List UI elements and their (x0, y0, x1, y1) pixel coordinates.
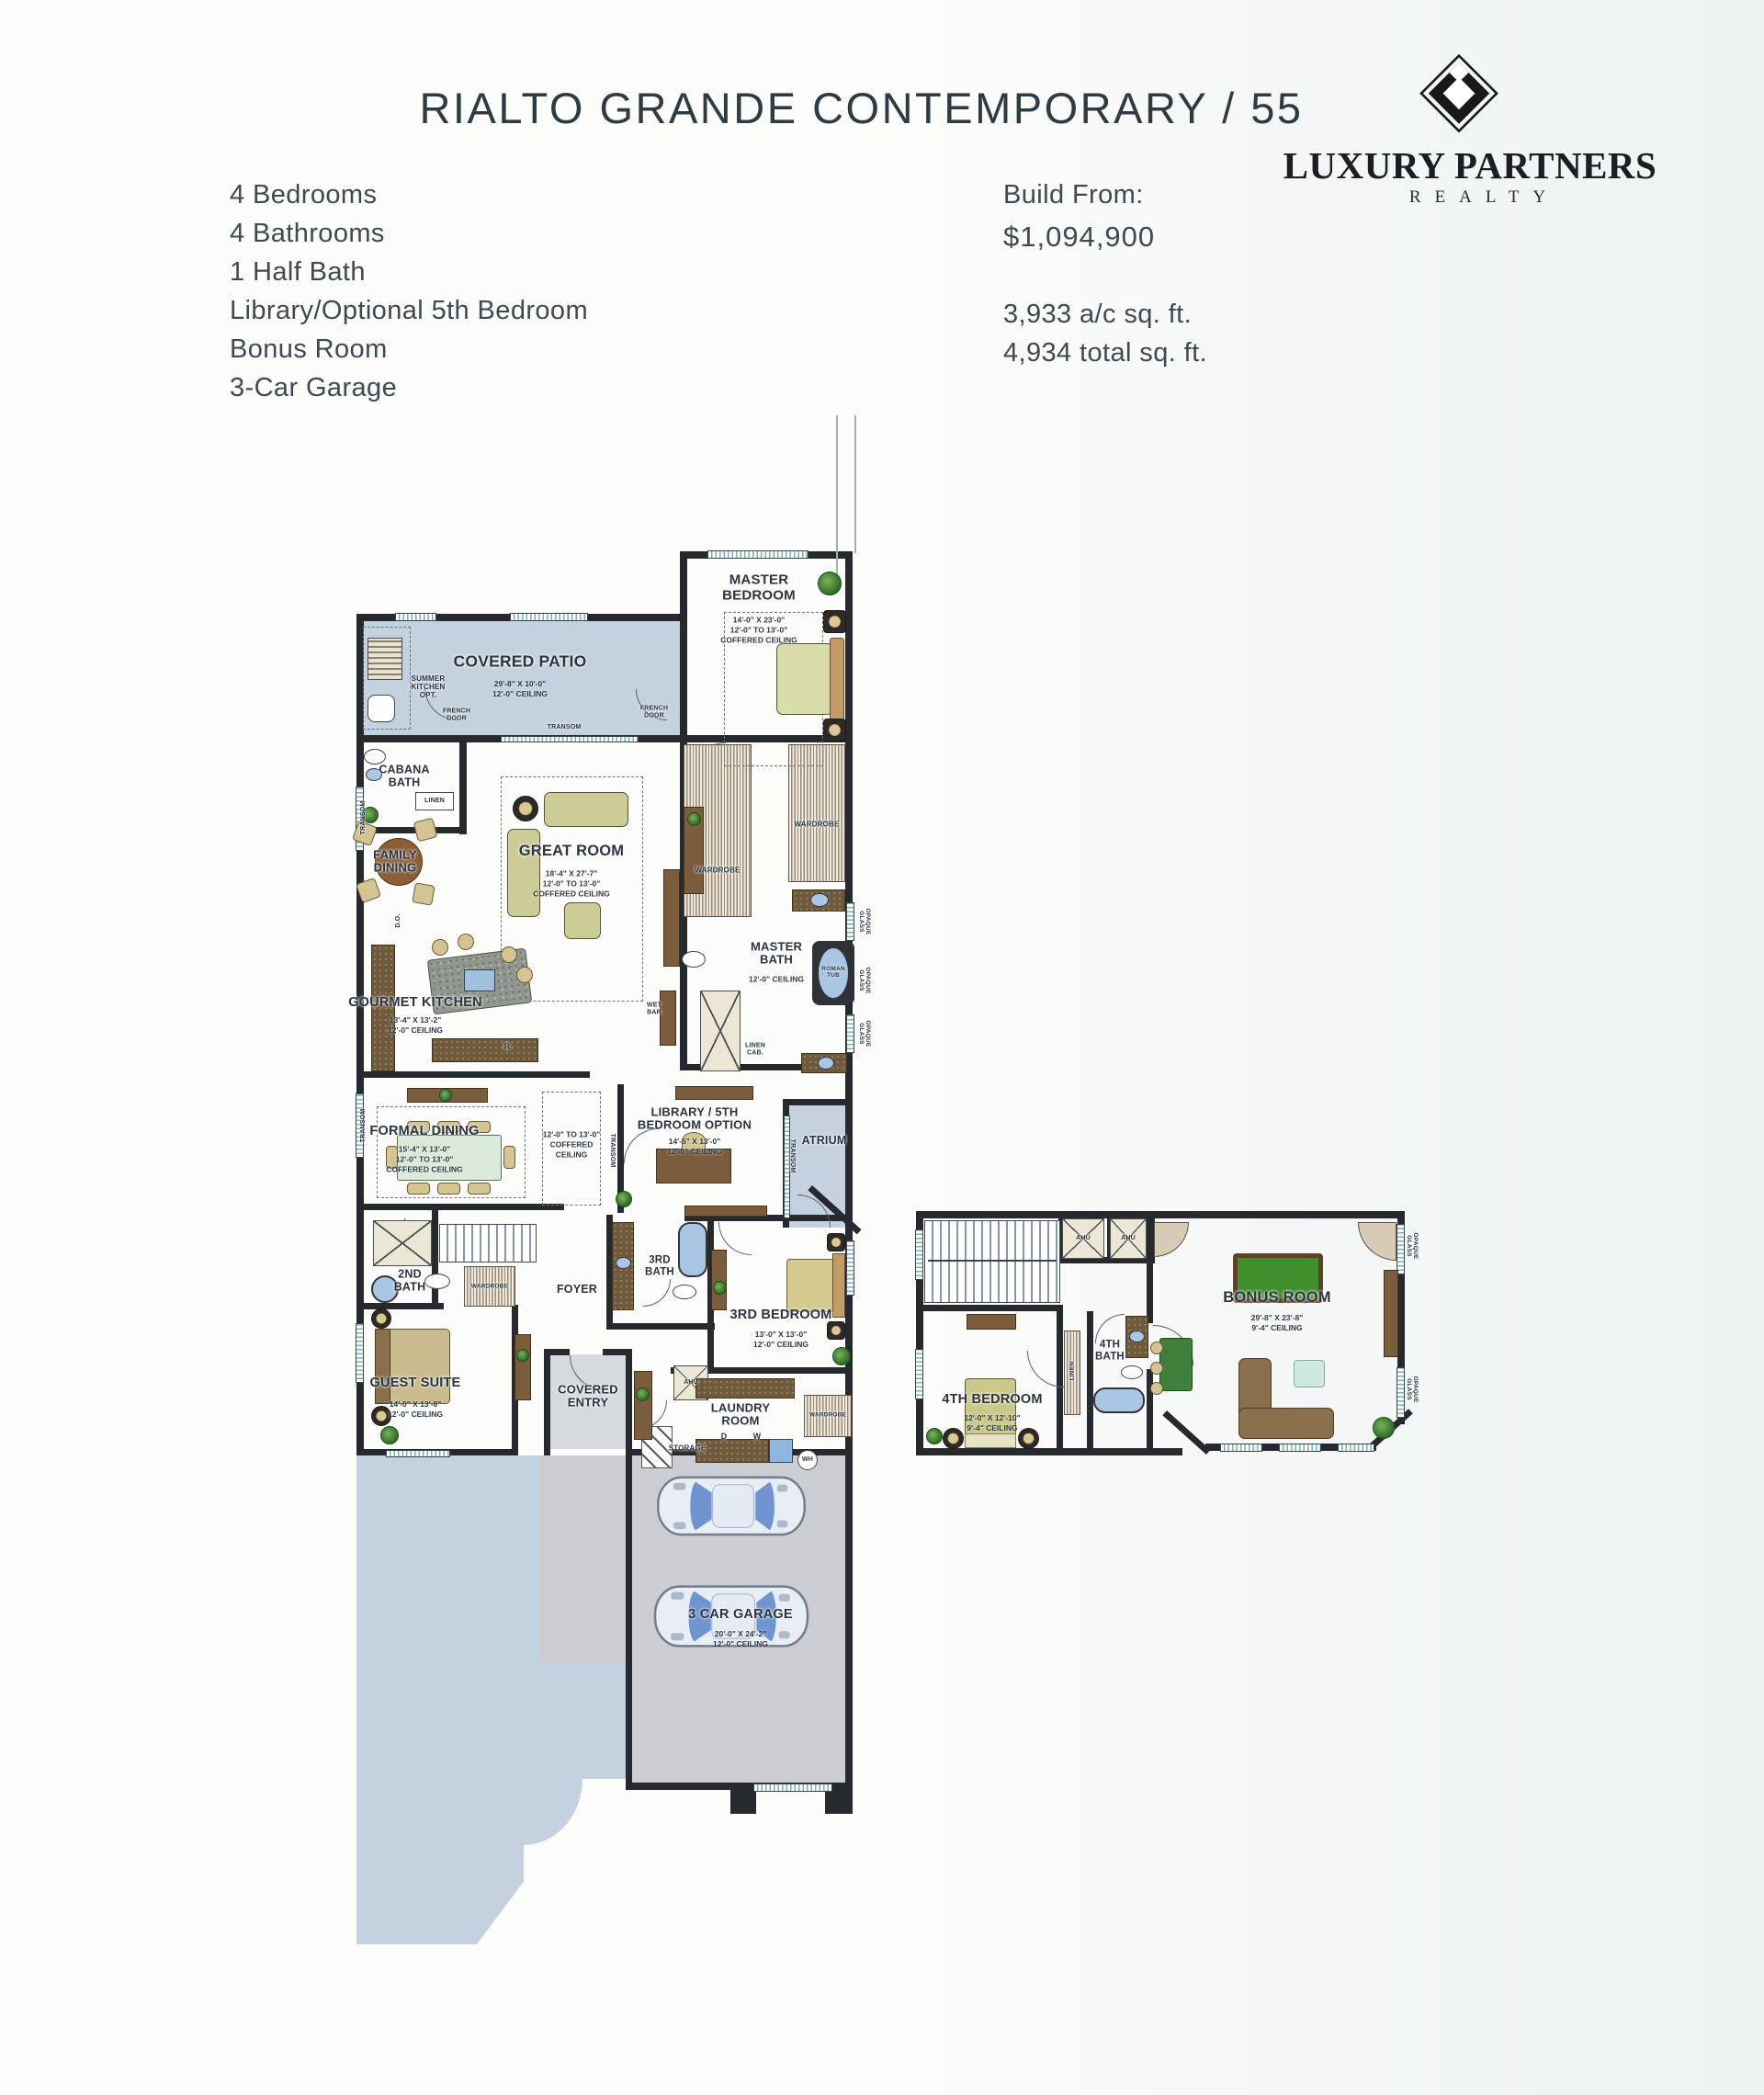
room-label-guest-suite: GUEST SUITE (370, 1376, 461, 1391)
tag-wardrobe: WARDROBE (695, 867, 740, 876)
plant (832, 1347, 851, 1365)
tag-french-door: FRENCH DOOR (443, 708, 470, 721)
ac-sqft: 3,933 a/c sq. ft. (1003, 300, 1192, 330)
tag-opaque-glass: OPAQUE GLASS (858, 968, 871, 994)
window (1220, 1444, 1262, 1452)
sink (1129, 1331, 1145, 1342)
nightstand (827, 1233, 845, 1251)
tag-ahu: AHU (684, 1379, 698, 1387)
tag-wardrobe: WARDROBE (809, 1411, 846, 1418)
stairs-second-floor (924, 1220, 1060, 1303)
room-dims-gourmet-kitchen: 13'-4" X 13'-2" 12'-0" CEILING (388, 1015, 443, 1036)
window-opaque-glass (846, 1014, 854, 1053)
room-dims-bonus-room: 29'-8" X 23'-8" 9'-4" CEILING (1251, 1313, 1304, 1333)
chair (412, 882, 435, 905)
brand-name: LUXURY PARTNERS (1268, 143, 1672, 187)
nightstand (943, 1428, 964, 1449)
tag-transom: TRANSOM (548, 724, 582, 731)
room-label-master-bedroom: MASTER BEDROOM (722, 573, 796, 604)
stairs-foyer (439, 1224, 537, 1263)
room-label-garage: 3 CAR GARAGE (688, 1608, 793, 1623)
wall (626, 1349, 632, 1455)
tag-opaque-glass: OPAQUE GLASS (1406, 1233, 1419, 1260)
plant (818, 572, 842, 595)
garage-pillar (730, 1790, 756, 1814)
tag-summer-kitchen: SUMMER KITCHEN OPT. (412, 675, 446, 699)
planter (634, 1371, 652, 1440)
garage-pillar (825, 1790, 853, 1814)
ottoman (1294, 1360, 1325, 1387)
stool (516, 967, 533, 983)
room-label-gourmet-kitchen: GOURMET KITCHEN (348, 996, 482, 1011)
window (395, 613, 436, 621)
plant (516, 1349, 529, 1362)
plant (687, 812, 701, 826)
window (356, 1323, 364, 1383)
bed-headboard (830, 638, 844, 720)
window-opaque-glass (846, 902, 854, 941)
tag-transom: TRANSOM (360, 801, 367, 835)
room-dims-formal-dining: 15'-4" X 13'-0" 12'-0" TO 13'-0" COFFERE… (386, 1144, 463, 1174)
toilet (424, 1274, 450, 1289)
room-label-wet-bar: WET BAR (647, 1002, 661, 1015)
bed-pillows (965, 1433, 1016, 1448)
stool (432, 939, 448, 956)
sofa (544, 792, 628, 827)
wall (626, 1449, 632, 1789)
tag-roman-tub: ROMAN TUB (821, 966, 845, 979)
room-label-great-room: GREAT ROOM (519, 843, 624, 859)
window (386, 1450, 450, 1457)
sectional-sofa (1238, 1408, 1334, 1439)
tag-ahu: AHU (1121, 1235, 1136, 1242)
tag-french-door: FRENCH DOOR (640, 705, 668, 719)
window-transom (501, 736, 639, 742)
driveway-lower (356, 1779, 524, 1944)
wall (356, 1204, 564, 1210)
room-label-cabana-bath: CABANA BATH (379, 764, 429, 789)
window-opaque-glass (1396, 1367, 1405, 1418)
toilet (1121, 1365, 1143, 1379)
tag-door-opening: D.O. (395, 913, 402, 927)
shower (373, 1220, 432, 1266)
room-label-second-bath: 2ND BATH (394, 1268, 426, 1294)
stool (1150, 1382, 1163, 1395)
room-label-family-dining: FAMILY DINING (373, 849, 417, 876)
bathtub (678, 1222, 707, 1277)
wall (1087, 1311, 1093, 1455)
door-arc (643, 1279, 671, 1307)
room-label-master-bath: MASTER BATH (751, 941, 802, 968)
window (915, 1349, 923, 1399)
room-label-covered-entry: COVERED ENTRY (558, 1384, 618, 1410)
room-label-bonus-room: BONUS ROOM (1223, 1289, 1331, 1306)
room-label-fourth-bath: 4TH BATH (1095, 1339, 1125, 1362)
tag-transom: TRANSOM (360, 1109, 367, 1143)
kitchen-counter (432, 1038, 538, 1062)
plant (636, 1387, 650, 1401)
wall (432, 1204, 438, 1307)
room-dims-guest-suite: 14'-0" X 13'-8" 12'-0" CEILING (388, 1399, 443, 1420)
chair (407, 1183, 430, 1195)
wall (923, 1305, 1063, 1311)
shelf (684, 1206, 767, 1217)
entry-walk (540, 1455, 626, 1663)
media-console (1384, 1270, 1398, 1357)
stool (458, 934, 474, 950)
feature-bathrooms: 4 Bathrooms (230, 219, 385, 249)
tag-transom: TRANSOM (608, 1134, 616, 1168)
summer-kitchen-sink (367, 695, 395, 722)
laundry-counter (695, 1378, 795, 1399)
brand-diamond-icon (1419, 53, 1499, 142)
plant (380, 1426, 399, 1444)
grill (367, 638, 402, 680)
wall (916, 1448, 1182, 1455)
nightstand (371, 1308, 391, 1329)
sink (810, 893, 829, 907)
shelf (711, 1250, 727, 1310)
door-arc (624, 1128, 659, 1163)
plant (926, 1428, 943, 1444)
tag-opaque-glass: OPAQUE GLASS (858, 909, 871, 935)
wall (680, 551, 687, 742)
room-dims-covered-patio: 29'-8" X 10'-0" 12'-0" CEILING (492, 679, 548, 699)
stair-rail (928, 1260, 1057, 1262)
room-label-formal-dining: FORMAL DINING (369, 1125, 479, 1139)
wall (356, 1303, 444, 1309)
tag-linen: LINEN (424, 798, 445, 805)
corner-chair (1358, 1222, 1396, 1261)
room-dims-master-bath: 12'-0" CEILING (749, 974, 804, 984)
room-label-atrium: ATRIUM (802, 1135, 847, 1148)
shower (700, 991, 741, 1071)
garage-door (753, 1784, 832, 1792)
wall (916, 1211, 1405, 1218)
side-table (513, 796, 538, 821)
bed-third (786, 1259, 836, 1312)
planter (514, 1334, 531, 1400)
nightstand (827, 1321, 845, 1340)
toilet (673, 1285, 696, 1299)
driveway-corner (524, 1779, 582, 1845)
bed-headboard (375, 1329, 390, 1404)
wall (356, 1071, 590, 1078)
plant (713, 1281, 727, 1295)
lot-line (854, 415, 856, 553)
flyer-page: { "header": { "title": "RIALTO GRANDE CO… (0, 0, 1764, 2095)
window (707, 550, 808, 559)
wet-bar-counter (660, 991, 676, 1046)
dresser (967, 1314, 1016, 1330)
plant (1373, 1417, 1395, 1439)
wall (459, 735, 467, 834)
bookshelf (675, 1086, 753, 1100)
plant (439, 1089, 452, 1102)
door-arc (1027, 1351, 1064, 1387)
window (1279, 1444, 1321, 1452)
room-dims-fourth-bedroom: 12'-0" X 12'-10" 9'-4" CEILING (964, 1413, 1020, 1433)
bed-headboard (832, 1253, 845, 1318)
wall (783, 1099, 853, 1105)
tag-transom: TRANSOM (788, 1139, 796, 1173)
room-label-covered-patio: COVERED PATIO (454, 652, 587, 670)
tag-opaque-glass: OPAQUE GLASS (1406, 1376, 1419, 1403)
tag-water-heater: WH (802, 1456, 813, 1464)
tag-linen: LINEN (1069, 1362, 1075, 1381)
tag-ahu: AHU (1076, 1235, 1091, 1242)
room-dims-garage: 20'-0" X 24'-2" 12'-0" CEILING (713, 1629, 768, 1649)
laundry-counter (695, 1439, 769, 1463)
washer (769, 1439, 793, 1463)
window-opaque-glass (1396, 1224, 1405, 1274)
room-label-storage: STORAGE (669, 1445, 707, 1454)
chair (503, 1146, 515, 1169)
tag-washer: W (753, 1433, 762, 1442)
tag-wardrobe: WARDROBE (471, 1283, 508, 1289)
tag-wardrobe: WARDROBE (794, 821, 839, 830)
armchair (564, 902, 601, 939)
plant (616, 1191, 632, 1207)
room-dims-master-bedroom: 14'-0" X 23'-0" 12'-0" TO 13'-0" COFFERE… (720, 615, 797, 645)
nightstand (823, 719, 846, 742)
stool (1150, 1362, 1163, 1375)
tag-linen-cab: LINEN CAB. (745, 1042, 765, 1056)
page-title: RIALTO GRANDE CONTEMPORARY / 55 (418, 83, 1305, 133)
toilet (682, 951, 706, 968)
price-value: $1,094,900 (1003, 221, 1155, 254)
tag-opaque-glass: OPAQUE GLASS (858, 1021, 871, 1047)
room-dims-gallery: 12'-0" TO 13'-0" COFFERED CEILING (543, 1129, 601, 1160)
car-top-view (654, 1474, 808, 1538)
room-label-third-bedroom: 3RD BEDROOM (730, 1308, 832, 1323)
chair (437, 1183, 460, 1195)
nightstand (1018, 1428, 1039, 1449)
room-label-laundry: LAUNDRY ROOM (711, 1402, 770, 1429)
wall (1147, 1369, 1153, 1455)
stool (1150, 1342, 1163, 1354)
window (510, 613, 588, 621)
bathtub (1093, 1387, 1145, 1413)
bed-master (776, 643, 833, 715)
feature-bedrooms: 4 Bedrooms (230, 180, 377, 210)
room-dims-third-bedroom: 13'-0" X 13'-0" 12'-0" CEILING (753, 1330, 808, 1350)
corner-shower (1154, 1222, 1189, 1257)
wall (1147, 1211, 1153, 1323)
feature-library: Library/Optional 5th Bedroom (230, 296, 588, 326)
room-dims-library: 14'-5" X 13'-0" 12'-0" CEILING (667, 1137, 722, 1157)
window (846, 1240, 854, 1296)
lot-line (836, 415, 838, 581)
tag-dryer: D (721, 1433, 728, 1442)
room-label-third-bath: 3RD BATH (645, 1254, 674, 1277)
total-sqft: 4,934 total sq. ft. (1003, 338, 1207, 368)
chair (413, 818, 438, 843)
room-label-fourth-bedroom: 4TH BEDROOM (942, 1393, 1042, 1408)
sink (616, 1257, 631, 1269)
wall (544, 1349, 550, 1455)
room-label-foyer: FOYER (557, 1284, 597, 1297)
wall (606, 1323, 715, 1330)
feature-halfbath: 1 Half Bath (230, 257, 366, 288)
room-dims-great-room: 18'-4" X 27'-7" 12'-0" TO 13'-0" COFFERE… (533, 868, 610, 899)
media-console (663, 869, 680, 967)
chair (468, 1183, 491, 1195)
window (915, 1229, 923, 1280)
window (1338, 1444, 1374, 1452)
stool (501, 946, 517, 963)
brand-sub: REALTY (1284, 187, 1670, 208)
sink (818, 1057, 834, 1070)
tag-range: R (504, 1043, 511, 1052)
build-from-label: Build From: (1003, 180, 1144, 210)
island-sink (464, 969, 495, 991)
feature-bonus: Bonus Room (230, 334, 388, 365)
room-label-library: LIBRARY / 5TH BEDROOM OPTION (638, 1106, 752, 1133)
nightstand (823, 610, 846, 633)
feature-garage: 3-Car Garage (230, 373, 397, 403)
wet-bar-counter (1159, 1338, 1193, 1391)
